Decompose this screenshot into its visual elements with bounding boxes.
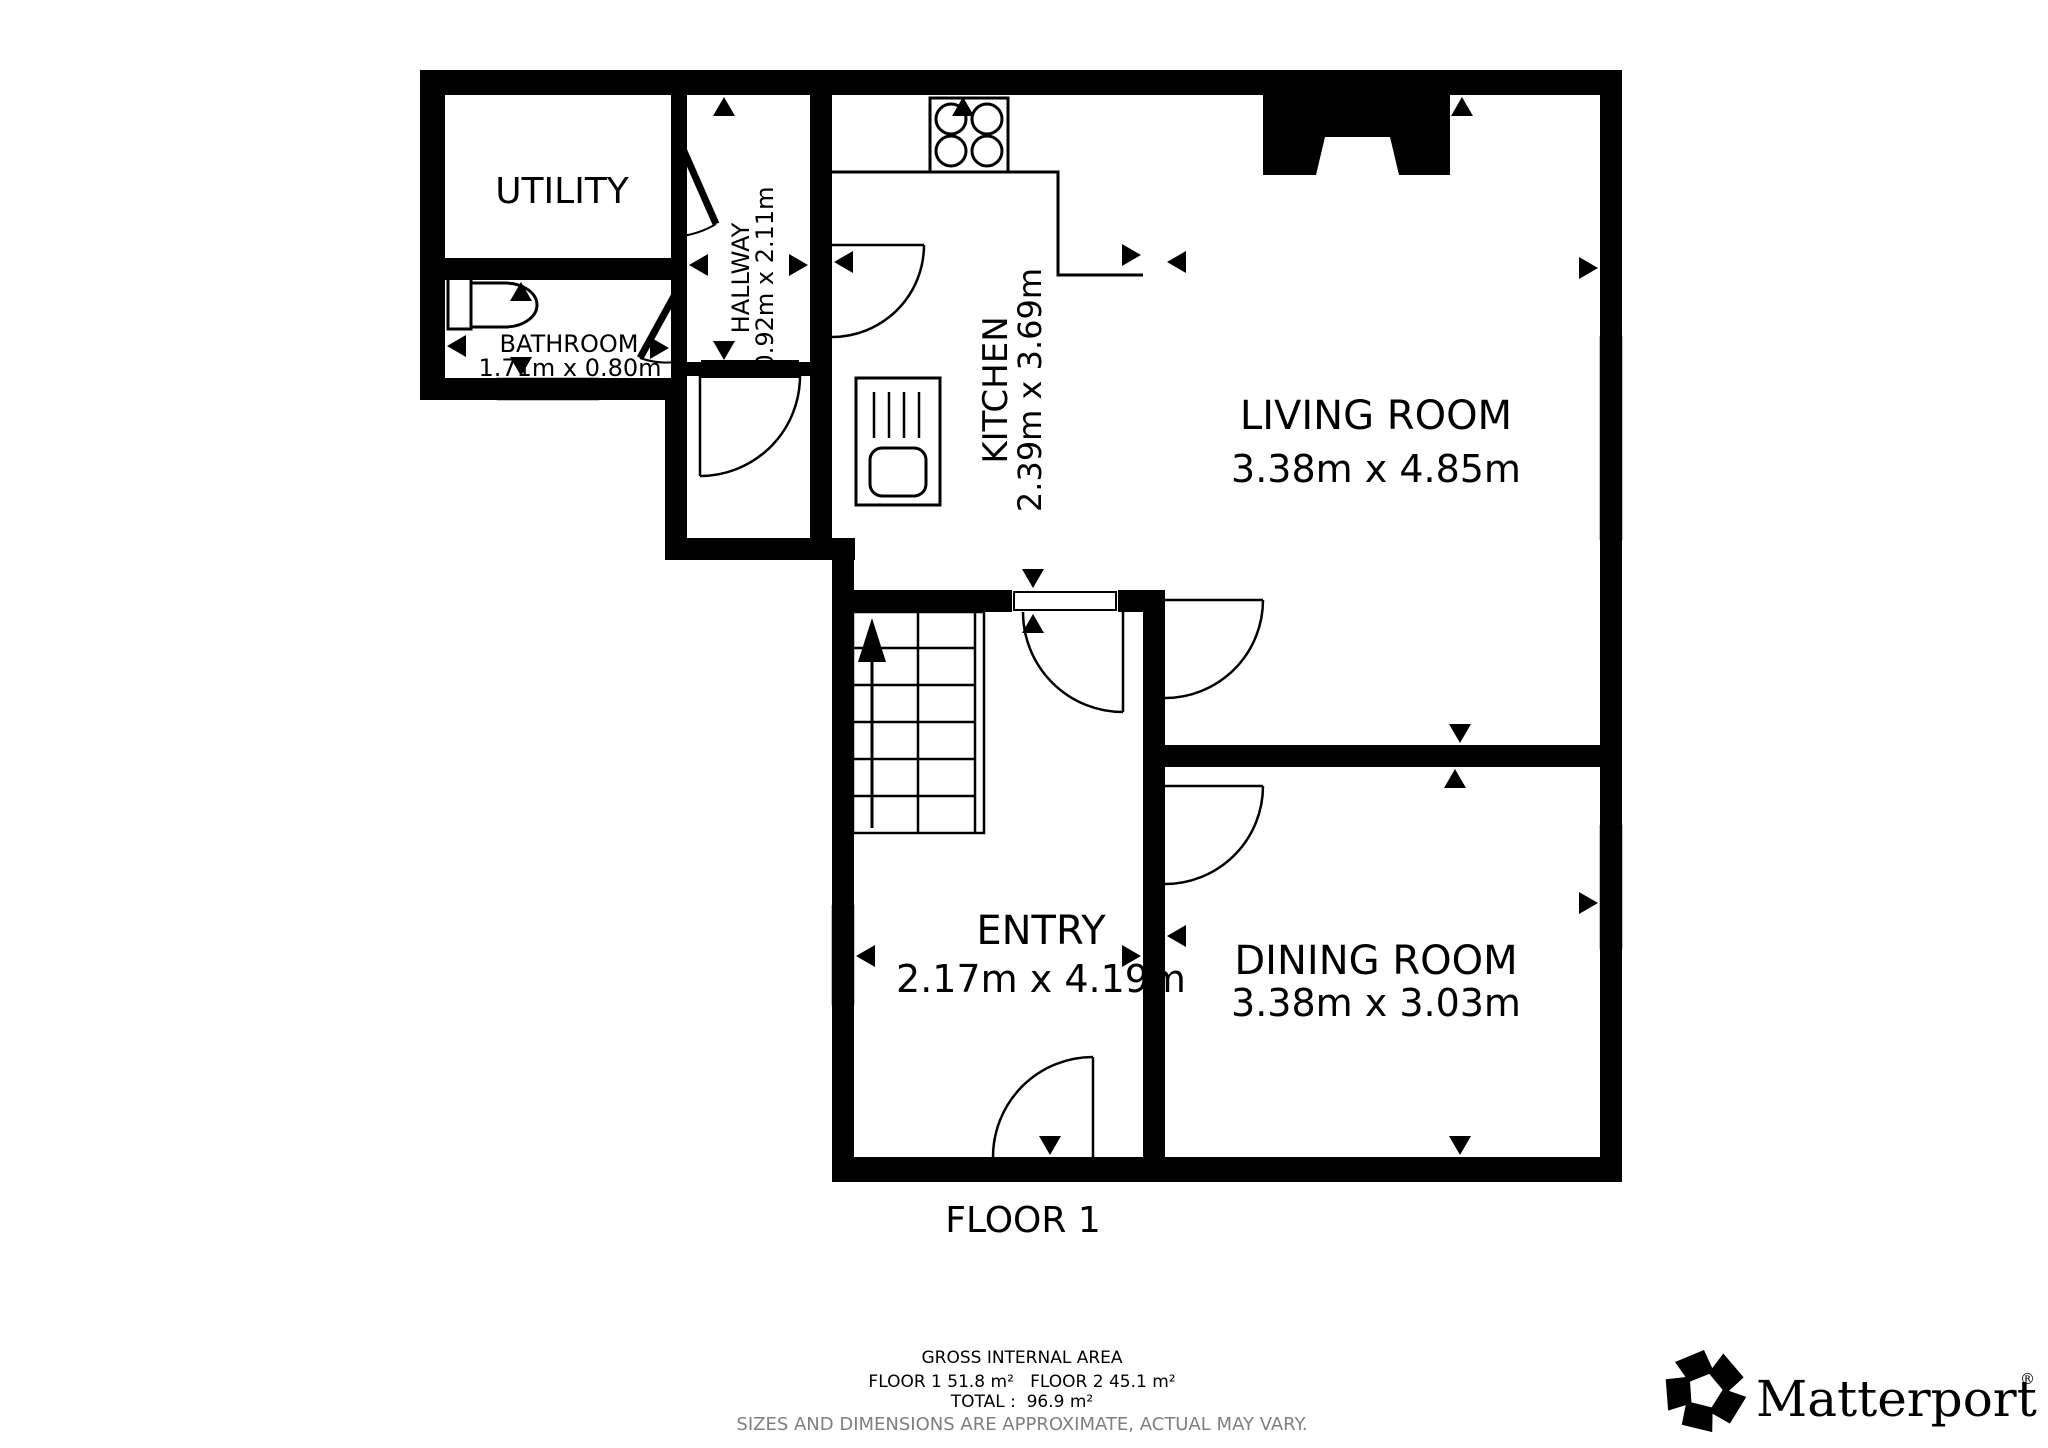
kitchen-counter xyxy=(832,172,1143,275)
dining-room-dims: 3.38m x 3.03m xyxy=(1231,981,1521,1025)
wall-hallway-bottom xyxy=(687,362,810,376)
fireplace-icon xyxy=(1263,95,1450,175)
kitchen-dims: 2.39m x 3.69m xyxy=(1011,268,1049,512)
floor-title: FLOOR 1 xyxy=(945,1200,1101,1241)
entry-label: ENTRY xyxy=(976,908,1106,954)
toilet-icon xyxy=(448,278,537,329)
wall-right xyxy=(1600,70,1622,1182)
kitchen-label: KITCHEN xyxy=(976,316,1016,463)
entry-top-door-jamb xyxy=(1014,592,1116,610)
wall-utility-bathroom-divider xyxy=(445,258,673,280)
wall-kitchen-bottom xyxy=(832,590,1012,612)
hallway-dims: 0.92m x 2.11m xyxy=(751,186,779,369)
wall-entry-dining xyxy=(1143,590,1165,1157)
disclaimer-line: SIZES AND DIMENSIONS ARE APPROXIMATE, AC… xyxy=(736,1414,1307,1435)
door-swing-icon-living xyxy=(1165,600,1263,698)
entry-dims: 2.17m x 4.19m xyxy=(896,957,1186,1001)
entry-measure-arrows xyxy=(856,614,1141,1155)
wall-top xyxy=(420,70,1622,95)
floorplan-canvas: UTILITY HALLWAY 0.92m x 2.11m BATHROOM 1… xyxy=(0,0,2048,1448)
wall-utility-hallway xyxy=(671,70,687,378)
stairs xyxy=(853,612,984,833)
matterport-logo: Matterport ® xyxy=(1657,1350,2037,1442)
floorplan-page: UTILITY HALLWAY 0.92m x 2.11m BATHROOM 1… xyxy=(0,0,2048,1448)
wall-hallway-kitchen xyxy=(810,70,832,560)
floor-areas-line: FLOOR 1 51.8 m² FLOOR 2 45.1 m² xyxy=(868,1372,1175,1392)
matterport-logo-icon xyxy=(1657,1350,1754,1442)
wall-lobby-left xyxy=(665,378,687,560)
total-area-line: TOTAL : 96.9 m² xyxy=(950,1392,1094,1412)
living-room-dims: 3.38m x 4.85m xyxy=(1231,447,1521,491)
registered-trademark-icon: ® xyxy=(2020,1370,2035,1388)
room-labels: UTILITY HALLWAY 0.92m x 2.11m BATHROOM 1… xyxy=(478,171,1521,1241)
matterport-wordmark: Matterport xyxy=(1756,1370,2037,1428)
sink-icon xyxy=(856,378,940,505)
door-swing-icon-lobby xyxy=(700,376,800,476)
wall-entry-left xyxy=(832,538,854,1182)
gross-internal-area-title: GROSS INTERNAL AREA xyxy=(921,1348,1122,1368)
dining-room-label: DINING ROOM xyxy=(1234,938,1517,984)
utility-label: UTILITY xyxy=(495,171,630,212)
wall-left-upper xyxy=(420,70,445,400)
footer: GROSS INTERNAL AREA FLOOR 1 51.8 m² FLOO… xyxy=(736,1348,1307,1435)
living-room-label: LIVING ROOM xyxy=(1240,393,1512,439)
door-swing-icon-dining xyxy=(1165,786,1263,884)
bathroom-dims: 1.71m x 0.80m xyxy=(478,354,661,382)
wall-living-dining-divider xyxy=(1143,745,1622,767)
